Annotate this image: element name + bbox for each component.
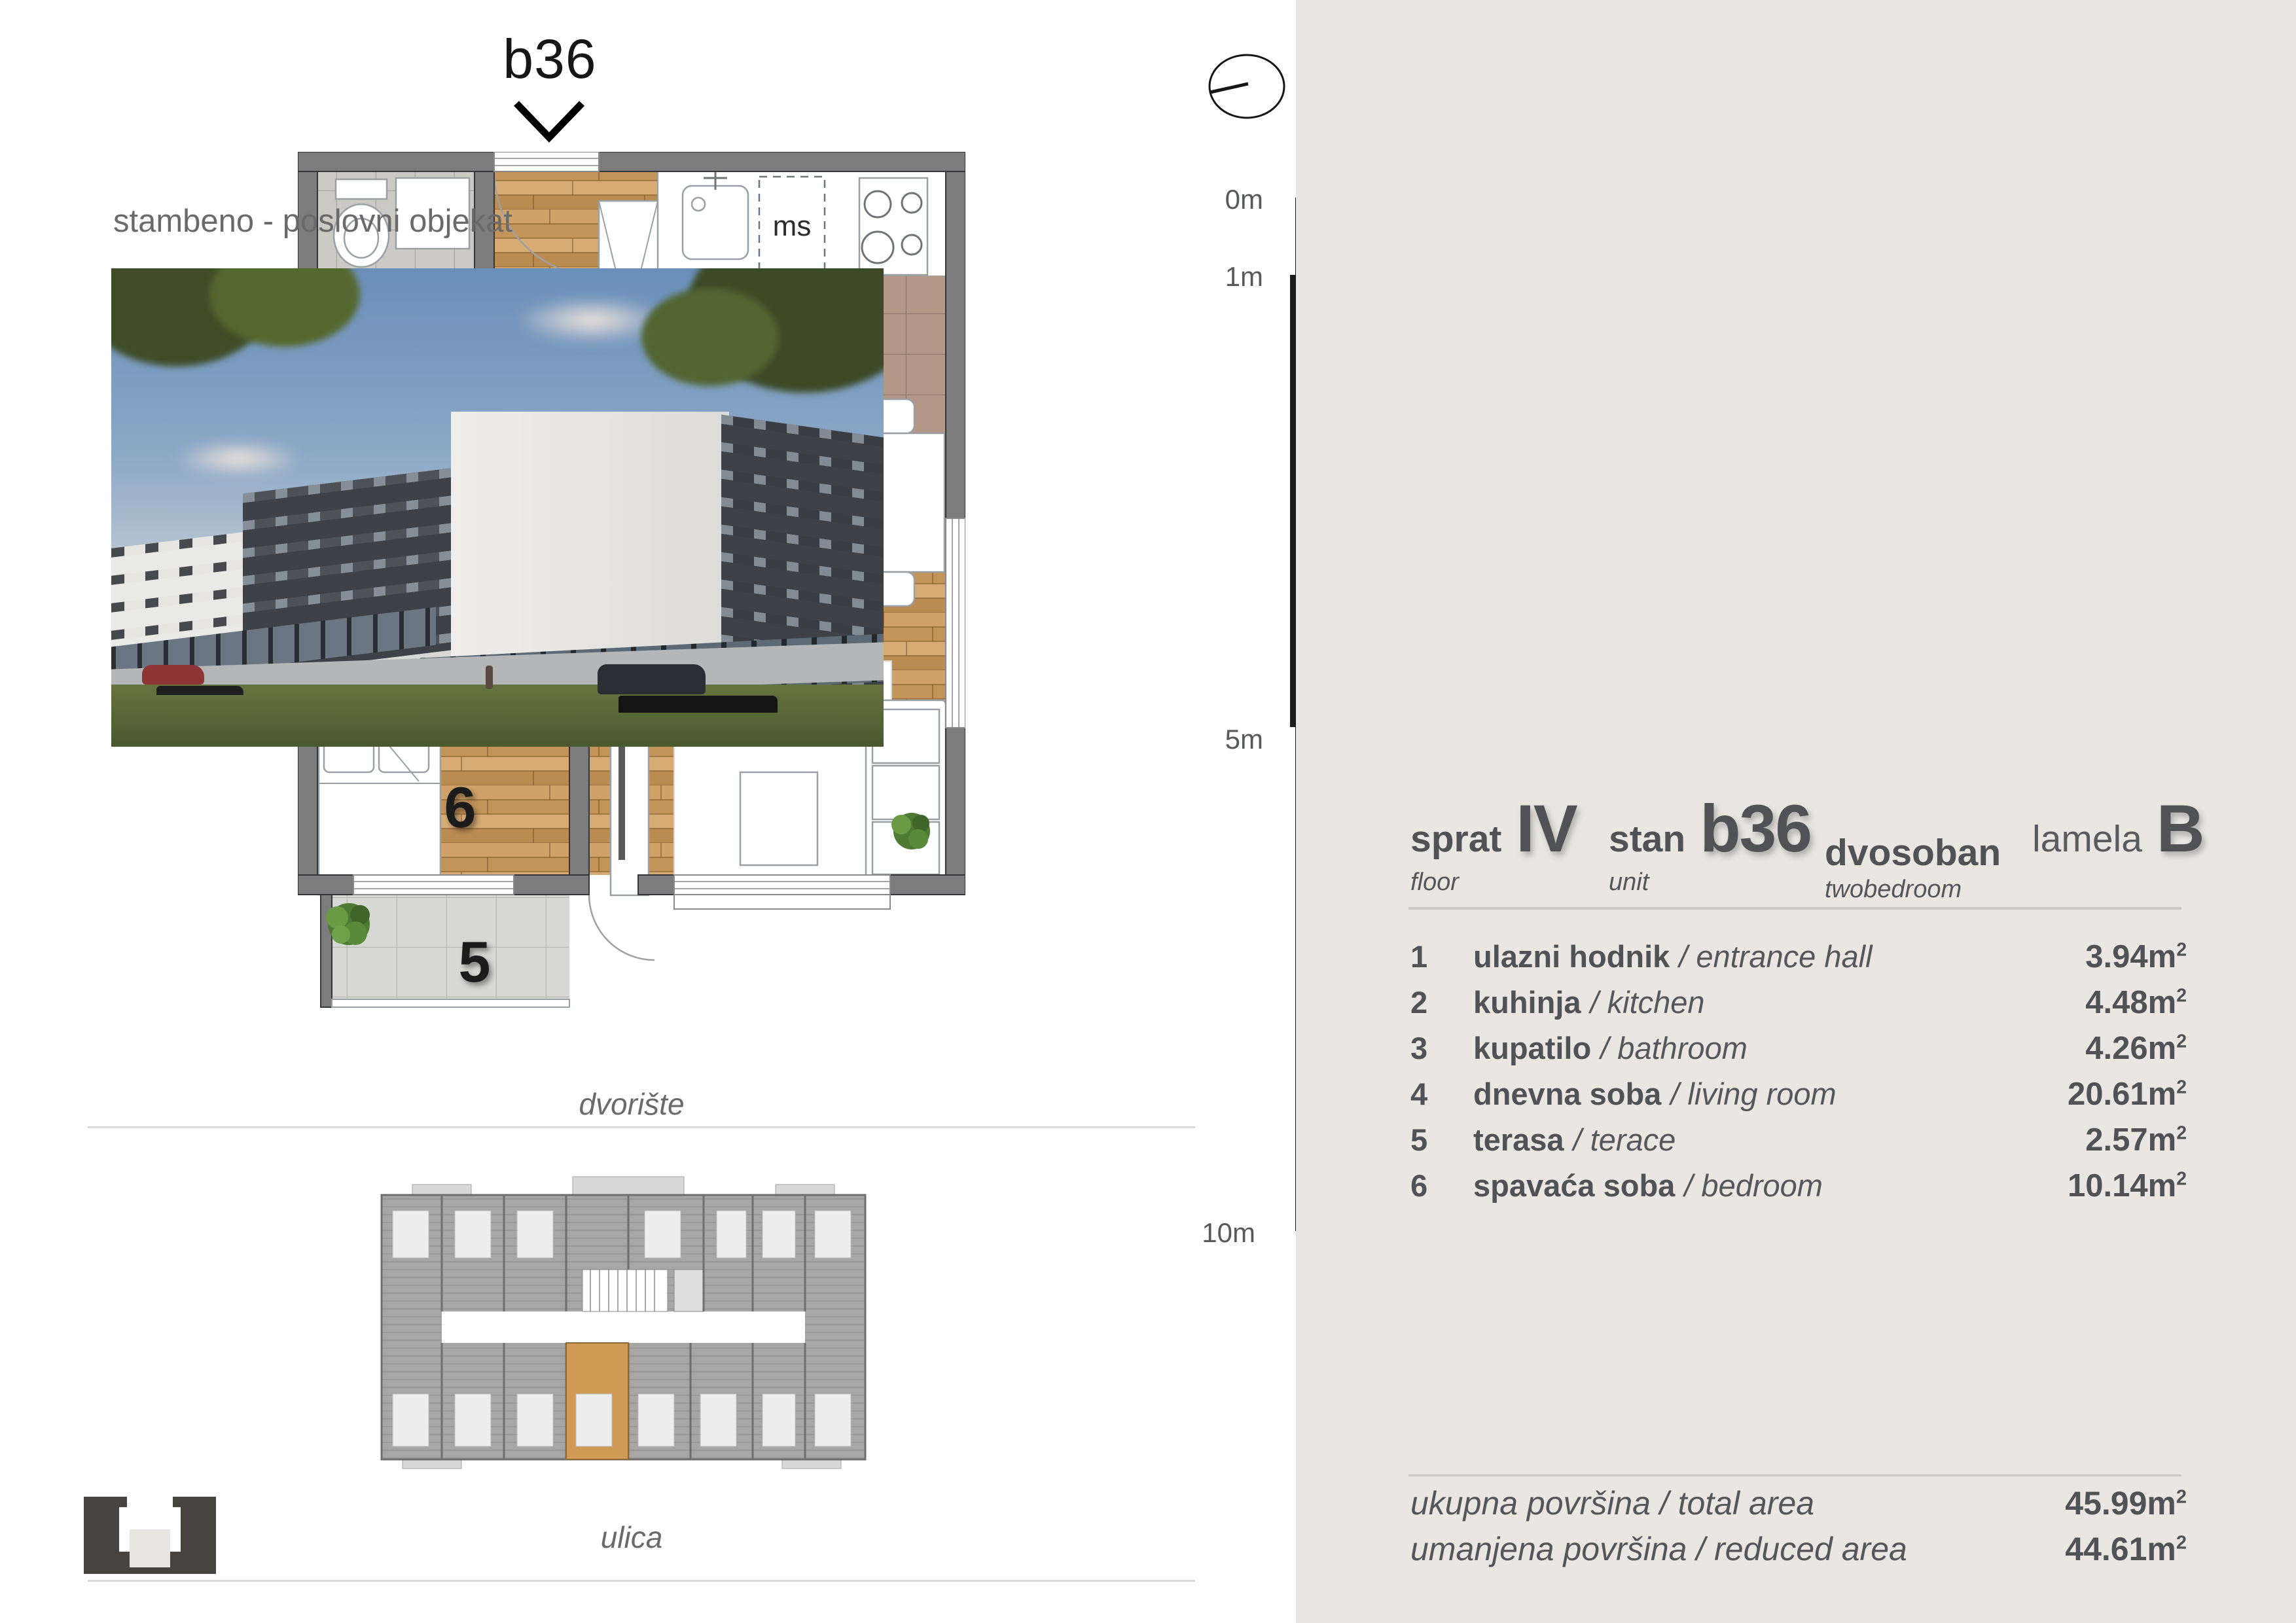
divider-line (1408, 1474, 2181, 1476)
unit-title: b36 (298, 27, 802, 91)
totals-section: ukupna površina / total area 45.99m2 uma… (1410, 1484, 2187, 1576)
scale-label-1m: 1m (1203, 261, 1263, 293)
grass (111, 685, 884, 747)
building-front-tower (451, 412, 729, 679)
room-area-list: 1 ulazni hodnik / entrance hall 3.94m2 2… (1410, 938, 2187, 1213)
divider-line (88, 1580, 1195, 1582)
room-number-6: 6 (444, 775, 476, 840)
lamela-label: lamela (2032, 817, 2142, 861)
room-row: 2 kuhinja / kitchen 4.48m2 (1410, 984, 2187, 1030)
sprat-value: IV (1516, 791, 1576, 867)
type-label: dvosoban (1825, 831, 2001, 874)
unit-floor-group: sprat IV floor (1410, 791, 1577, 897)
divider-line (1408, 907, 2181, 910)
stan-label: stan (1609, 817, 1685, 861)
building-render-photo (111, 268, 884, 747)
scale-bar-segment (1290, 275, 1296, 727)
ms-label: ms (773, 210, 812, 242)
street-label: ulica (79, 1520, 1185, 1555)
floor-sublabel: floor (1410, 868, 1577, 897)
room-row: 3 kupatilo / bathroom 4.26m2 (1410, 1030, 2187, 1076)
pedestrian (486, 666, 493, 689)
courtyard-label: dvorište (79, 1086, 1185, 1122)
reduced-area-row: umanjena površina / reduced area 44.61m2 (1410, 1530, 2187, 1576)
unit-number-group: stan b36 unit (1609, 791, 1811, 897)
scale-label-5m: 5m (1203, 724, 1263, 755)
entrance-arrow-icon (511, 98, 588, 145)
lamela-value: B (2157, 791, 2204, 867)
unit-type-group: dvosoban twobedroom (1825, 791, 2001, 904)
scale-label-10m: 10m (1195, 1217, 1255, 1249)
room-row: 4 dnevna soba / living room 20.61m2 (1410, 1076, 2187, 1122)
stan-value: b36 (1700, 791, 1811, 867)
type-sublabel: twobedroom (1825, 876, 2001, 904)
tree-foliage (641, 288, 779, 386)
scale-label-0m: 0m (1203, 184, 1263, 215)
red-car (142, 665, 204, 685)
sprat-label: sprat (1410, 817, 1501, 861)
divider-line (88, 1126, 1195, 1128)
lamela-group: lamela B (2032, 791, 2204, 867)
room-row: 5 terasa / terace 2.57m2 (1410, 1122, 2187, 1168)
unit-sublabel: unit (1609, 868, 1811, 897)
room-row: 1 ulazni hodnik / entrance hall 3.94m2 (1410, 938, 2187, 984)
project-title: stambeno - poslovni objekat (113, 203, 512, 240)
room-number-5: 5 (459, 929, 491, 994)
north-compass-icon (1204, 51, 1289, 123)
dark-car (598, 664, 706, 694)
building-level-plan (376, 1171, 870, 1472)
total-area-row: ukupna površina / total area 45.99m2 (1410, 1484, 2187, 1530)
room-row: 6 spavaća soba / bedroom 10.14m2 (1410, 1168, 2187, 1213)
